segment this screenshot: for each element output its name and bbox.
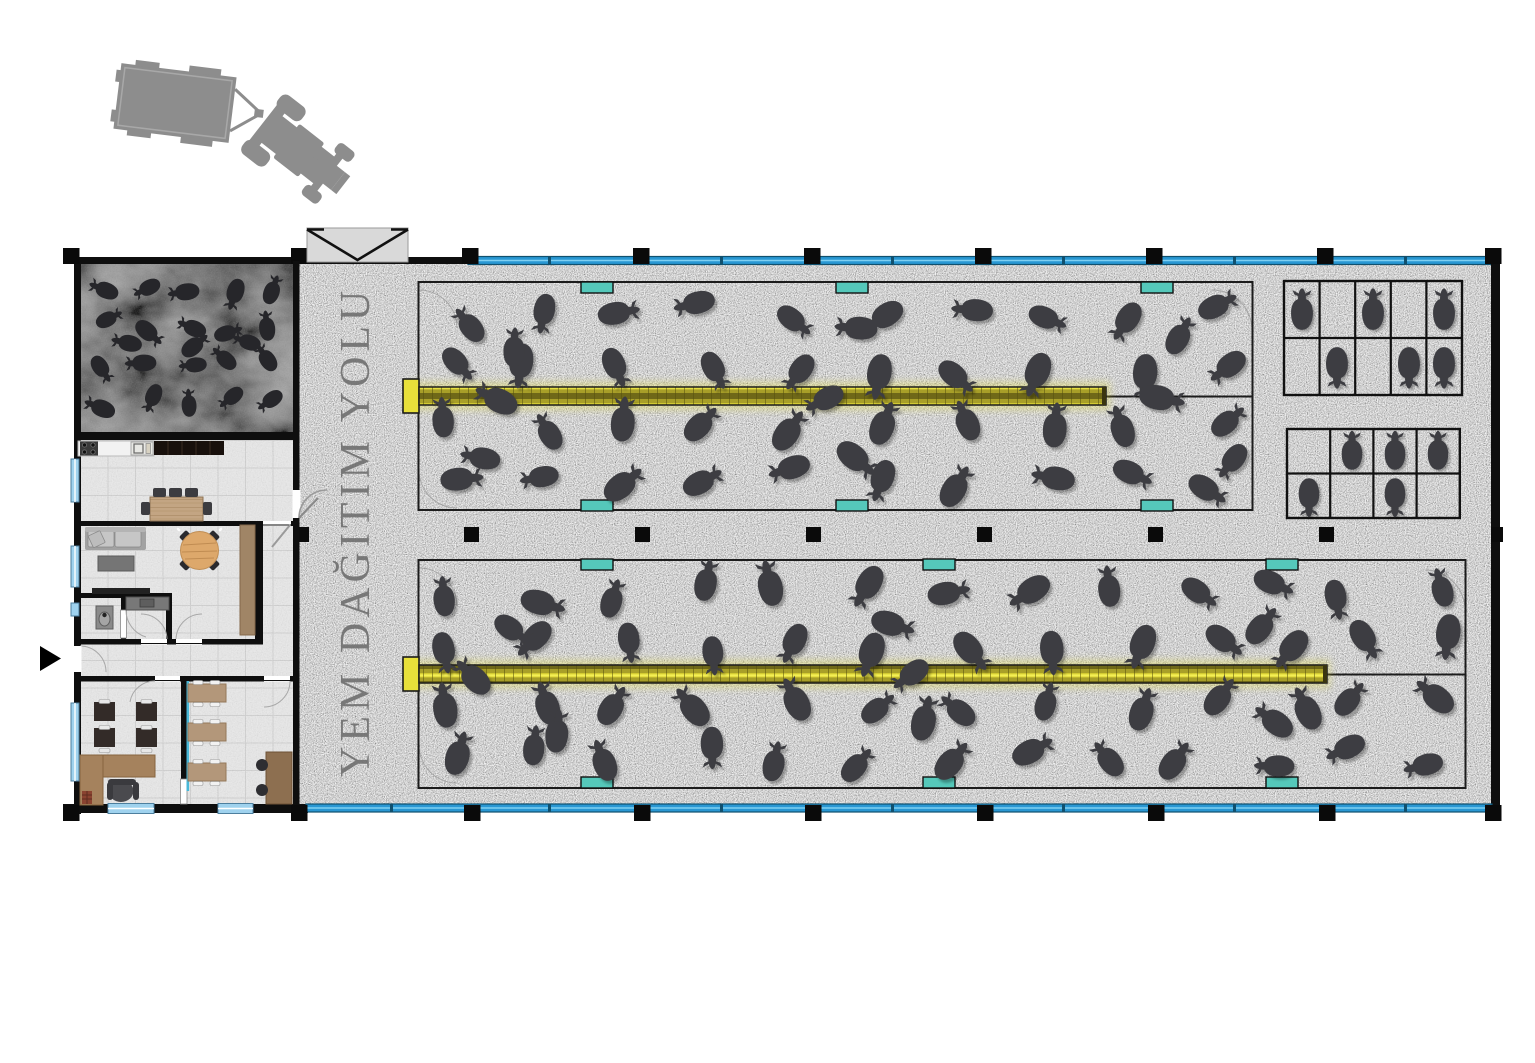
svg-text:YEM DAĞITIM YOLU: YEM DAĞITIM YOLU — [332, 286, 379, 777]
